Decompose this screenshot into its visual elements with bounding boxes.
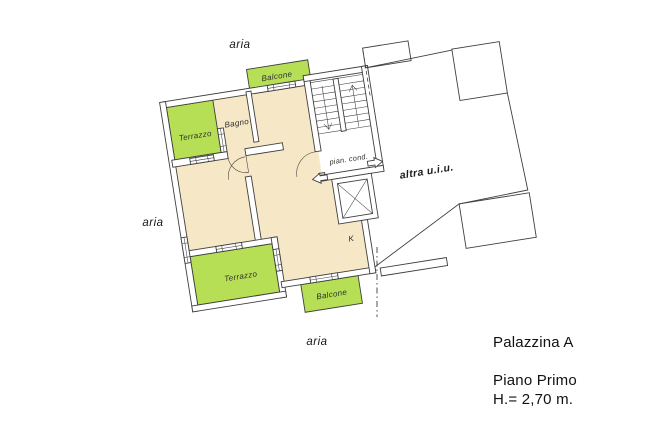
terrace-upper-area bbox=[166, 100, 221, 160]
air-label-left: aria bbox=[142, 217, 163, 229]
plan-group: Balcone Terrazzo Bagno Terrazzo Balcone … bbox=[156, 26, 542, 330]
title-block: Palazzina A Piano Primo H.= 2,70 m. bbox=[493, 333, 577, 409]
floor-plan-page: Balcone Terrazzo Bagno Terrazzo Balcone … bbox=[0, 0, 650, 448]
air-label-bottom: aria bbox=[306, 336, 327, 348]
elevator-shaft bbox=[332, 173, 379, 224]
other-unit-label: altra u.i.u. bbox=[399, 161, 455, 181]
landing-label: pian. cond. bbox=[328, 152, 369, 167]
staircase bbox=[310, 74, 371, 135]
ceiling-height: H.= 2,70 m. bbox=[493, 390, 577, 409]
air-label-top: aria bbox=[229, 39, 250, 51]
building-name: Palazzina A bbox=[493, 333, 577, 352]
floor-name: Piano Primo bbox=[493, 371, 577, 390]
